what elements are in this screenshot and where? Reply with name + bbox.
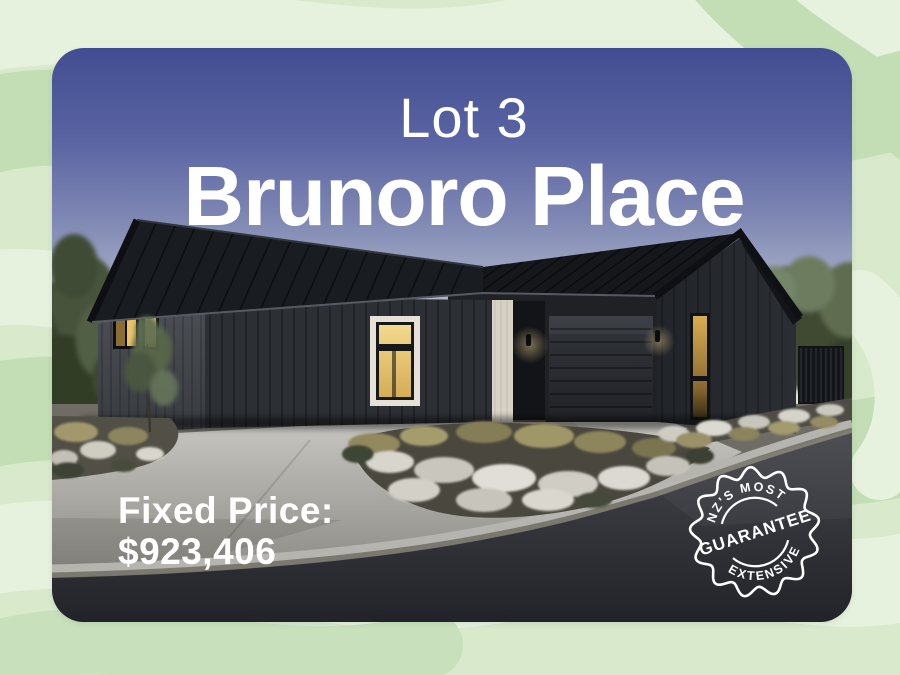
promo-flyer: NZ'S MOST EXTENSIVE GUARANTEE Lot 3 Brun… [0, 0, 900, 675]
fence [798, 346, 844, 404]
front-wall [205, 297, 492, 428]
price-block: Fixed Price: $923,406 [118, 490, 334, 572]
price-label: Fixed Price: [118, 490, 334, 531]
tall-window [690, 313, 710, 420]
garage-wall-lamp [655, 330, 660, 342]
price-value: $923,406 [118, 531, 334, 572]
lounge-window [370, 316, 420, 406]
street-title: Brunoro Place [64, 154, 852, 238]
property-card: NZ'S MOST EXTENSIVE GUARANTEE Lot 3 Brun… [52, 48, 852, 622]
lot-title: Lot 3 [64, 90, 852, 146]
entry-wall-lamp [526, 334, 531, 346]
